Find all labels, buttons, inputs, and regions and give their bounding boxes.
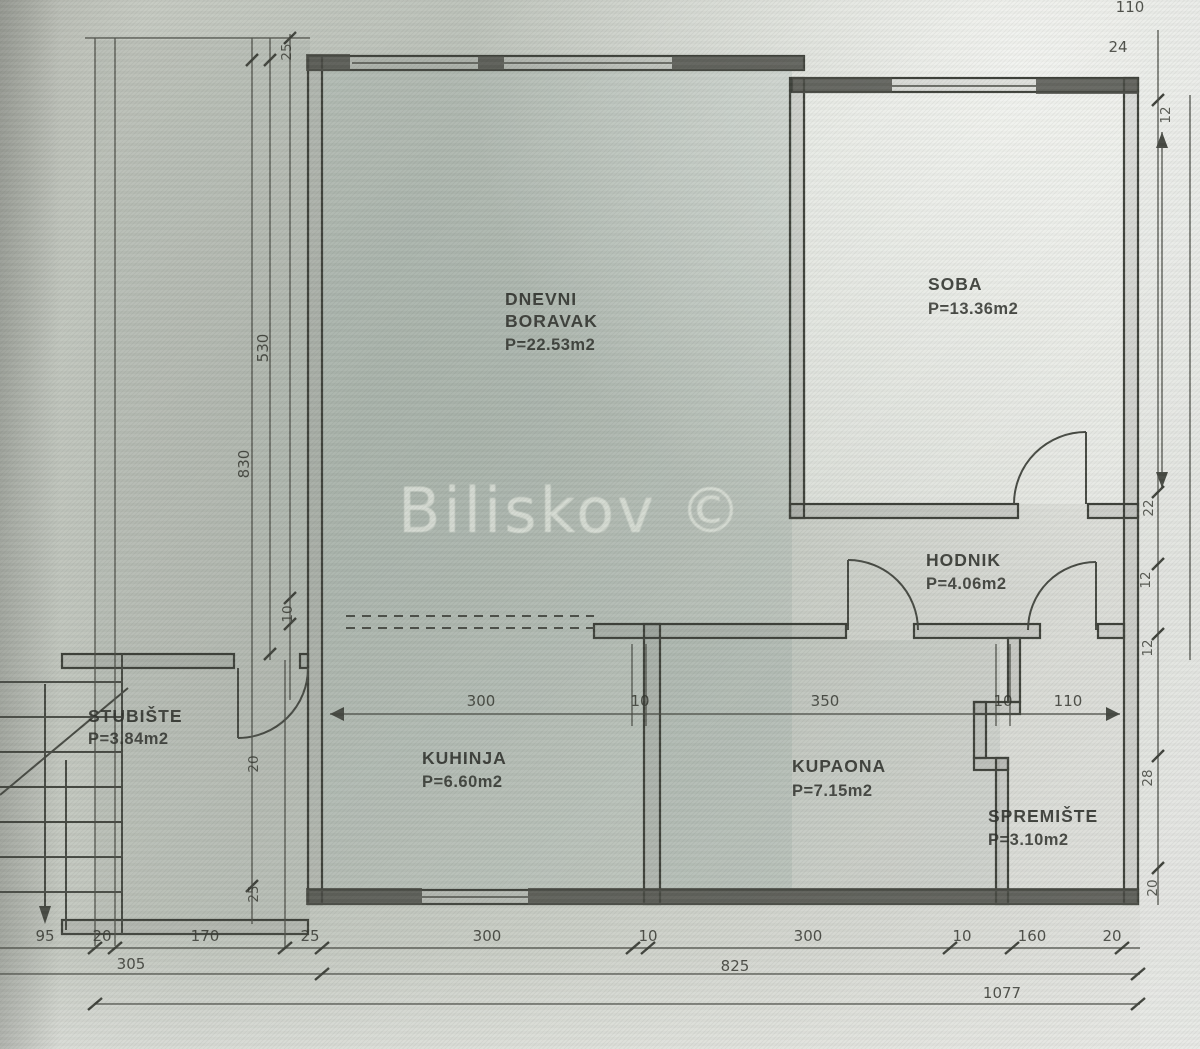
dim-label-mid-300a: 300 [467, 692, 496, 710]
room-area-spremiste: P=3.10m2 [988, 831, 1069, 849]
room-area-dnevni: P=22.53m2 [505, 336, 595, 354]
dim-label-b1-10b: 10 [952, 927, 971, 945]
wall-spremiste-zig3 [974, 702, 986, 758]
dim-label-left-530: 530 [254, 334, 272, 363]
pier-block [792, 77, 892, 93]
dim-label-b2-305: 305 [117, 955, 146, 973]
wall-living-soba [790, 78, 804, 518]
stairs-down-arrowhead [39, 906, 51, 924]
pier-block [1036, 78, 1138, 94]
wall-hodnik-bottom-b [914, 624, 1040, 638]
dim-label-mid-110: 110 [1054, 692, 1083, 710]
dim-label-b1-25: 25 [300, 927, 319, 945]
dim-label-left-25b: 25 [246, 885, 262, 902]
pier-block [672, 56, 804, 70]
dim-label-left-25a: 25 [279, 43, 295, 60]
dim-label-right-12b: 12 [1138, 571, 1154, 588]
dim-label-left-20: 20 [246, 755, 262, 772]
door-swing-icon [848, 560, 918, 630]
pier-block [306, 888, 422, 905]
room-label-spremiste: SPREMIŠTE [988, 805, 1098, 826]
room-area-soba: P=13.36m2 [928, 300, 1018, 318]
dim-label-right-20: 20 [1145, 879, 1161, 896]
dim-label-b1-170: 170 [191, 927, 220, 945]
dim-label-b2-825: 825 [721, 957, 750, 975]
dim-label-b1-95: 95 [35, 927, 54, 945]
floor-plan-canvas: DNEVNI BORAVAK P=22.53m2 SOBA P=13.36m2 … [0, 0, 1200, 1049]
wall-soba-hodnik-right [1088, 504, 1138, 518]
room-area-kuhinja: P=6.60m2 [422, 773, 503, 791]
dim-label-right-22: 22 [1141, 499, 1157, 516]
wall-hodnik-bottom-c [1098, 624, 1124, 638]
dim-label-b1-300b: 300 [794, 927, 823, 945]
pier-block [478, 56, 504, 70]
dim-label-right-12c: 12 [1140, 639, 1156, 656]
room-label-hodnik: HODNIK [926, 550, 1001, 570]
dim-label-mid-10b: 10 [993, 692, 1012, 710]
dim-label-b3-1077: 1077 [983, 984, 1021, 1002]
dim-label-mid-350: 350 [811, 692, 840, 710]
door-swing-icon [1028, 562, 1096, 630]
room-area-hodnik: P=4.06m2 [926, 575, 1007, 593]
wall-stubiste-top [62, 654, 234, 668]
floor-plan-scan: DNEVNI BORAVAK P=22.53m2 SOBA P=13.36m2 … [0, 0, 1200, 1049]
dim-label-b1-20a: 20 [92, 927, 111, 945]
room-label-kuhinja: KUHINJA [422, 748, 507, 768]
room-label-dnevni-line2: BORAVAK [505, 311, 598, 331]
dim-label-top-110: 110 [1116, 0, 1145, 16]
wall-stubiste-top-stub [300, 654, 308, 668]
dim-label-b1-10a: 10 [638, 927, 657, 945]
pier-block [528, 888, 1138, 905]
room-label-kupaona: KUPAONA [792, 756, 886, 776]
dim-label-b1-300a: 300 [473, 927, 502, 945]
room-area-stubiste: P=3.84m2 [88, 730, 169, 748]
room-label-soba: SOBA [928, 274, 983, 294]
dim-label-mid-10a: 10 [630, 692, 649, 710]
dim-label-b1-160: 160 [1018, 927, 1047, 945]
pier-block [306, 54, 350, 71]
dim-label-right-28: 28 [1140, 769, 1156, 786]
room-area-kupaona: P=7.15m2 [792, 782, 873, 800]
dim-label-left-10: 10 [280, 605, 296, 622]
wall-hodnik-bottom-a [594, 624, 846, 638]
room-label-stubiste: STUBIŠTE [88, 705, 183, 726]
wall-left-outer [308, 56, 322, 904]
dim-label-b1-20b: 20 [1102, 927, 1121, 945]
dim-label-left-830: 830 [235, 450, 253, 479]
wall-soba-hodnik-left [790, 504, 1018, 518]
wall-right-outer [1124, 78, 1138, 904]
dim-label-right-12a: 12 [1158, 106, 1174, 123]
room-label-dnevni-line1: DNEVNI [505, 289, 577, 309]
dim-label-top-24: 24 [1108, 38, 1127, 56]
